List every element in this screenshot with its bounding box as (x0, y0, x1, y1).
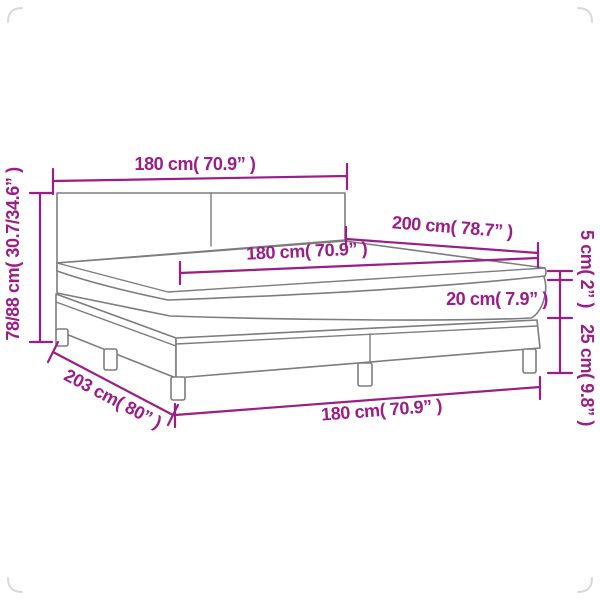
dim-base-height: 25 cm( 9.8” ) (548, 318, 597, 426)
dim-line-mattress-thickness (548, 280, 572, 318)
bed-leg-side-middle (104, 349, 117, 370)
frame-corner-top-left (8, 8, 22, 22)
bed-leg-front-right (523, 349, 536, 373)
dim-label-base-width: 180 cm( 70.9” ) (320, 395, 443, 424)
dim-line-base-height (548, 318, 572, 373)
bed-leg-front-left (171, 377, 185, 400)
frame-corner-bottom-left (8, 578, 22, 592)
dim-topper-thickness: 5 cm( 2” ) (548, 230, 597, 308)
bed-leg-front-middle (358, 363, 372, 386)
dim-label-headboard-height: 78/88 cm( 30.7/34.6” ) (3, 167, 23, 341)
product-dimension-image: 180 cm( 70.9” ) 78/88 cm( 30.7/34.6” ) 2… (0, 0, 600, 600)
dim-label-topper-thickness: 5 cm( 2” ) (577, 230, 597, 308)
dim-label-mattress-thickness: 20 cm( 7.9” ) (446, 289, 548, 309)
frame-corner-top-right (578, 8, 592, 22)
frame-corner-bottom-right (578, 578, 592, 592)
dim-headboard-width: 180 cm( 70.9” ) (53, 154, 347, 194)
dim-label-headboard-width: 180 cm( 70.9” ) (134, 154, 255, 174)
dim-label-bed-length: 200 cm( 78.7” ) (391, 212, 514, 241)
dim-headboard-height: 78/88 cm( 30.7/34.6” ) (3, 167, 52, 342)
dim-line-headboard-height (30, 193, 52, 342)
bed-dimension-diagram: 180 cm( 70.9” ) 78/88 cm( 30.7/34.6” ) 2… (0, 0, 600, 600)
dim-line-topper-thickness (548, 271, 572, 280)
dim-label-base-height: 25 cm( 9.8” ) (577, 324, 597, 426)
dim-label-bed-depth: 203 cm( 80” ) (61, 365, 165, 433)
